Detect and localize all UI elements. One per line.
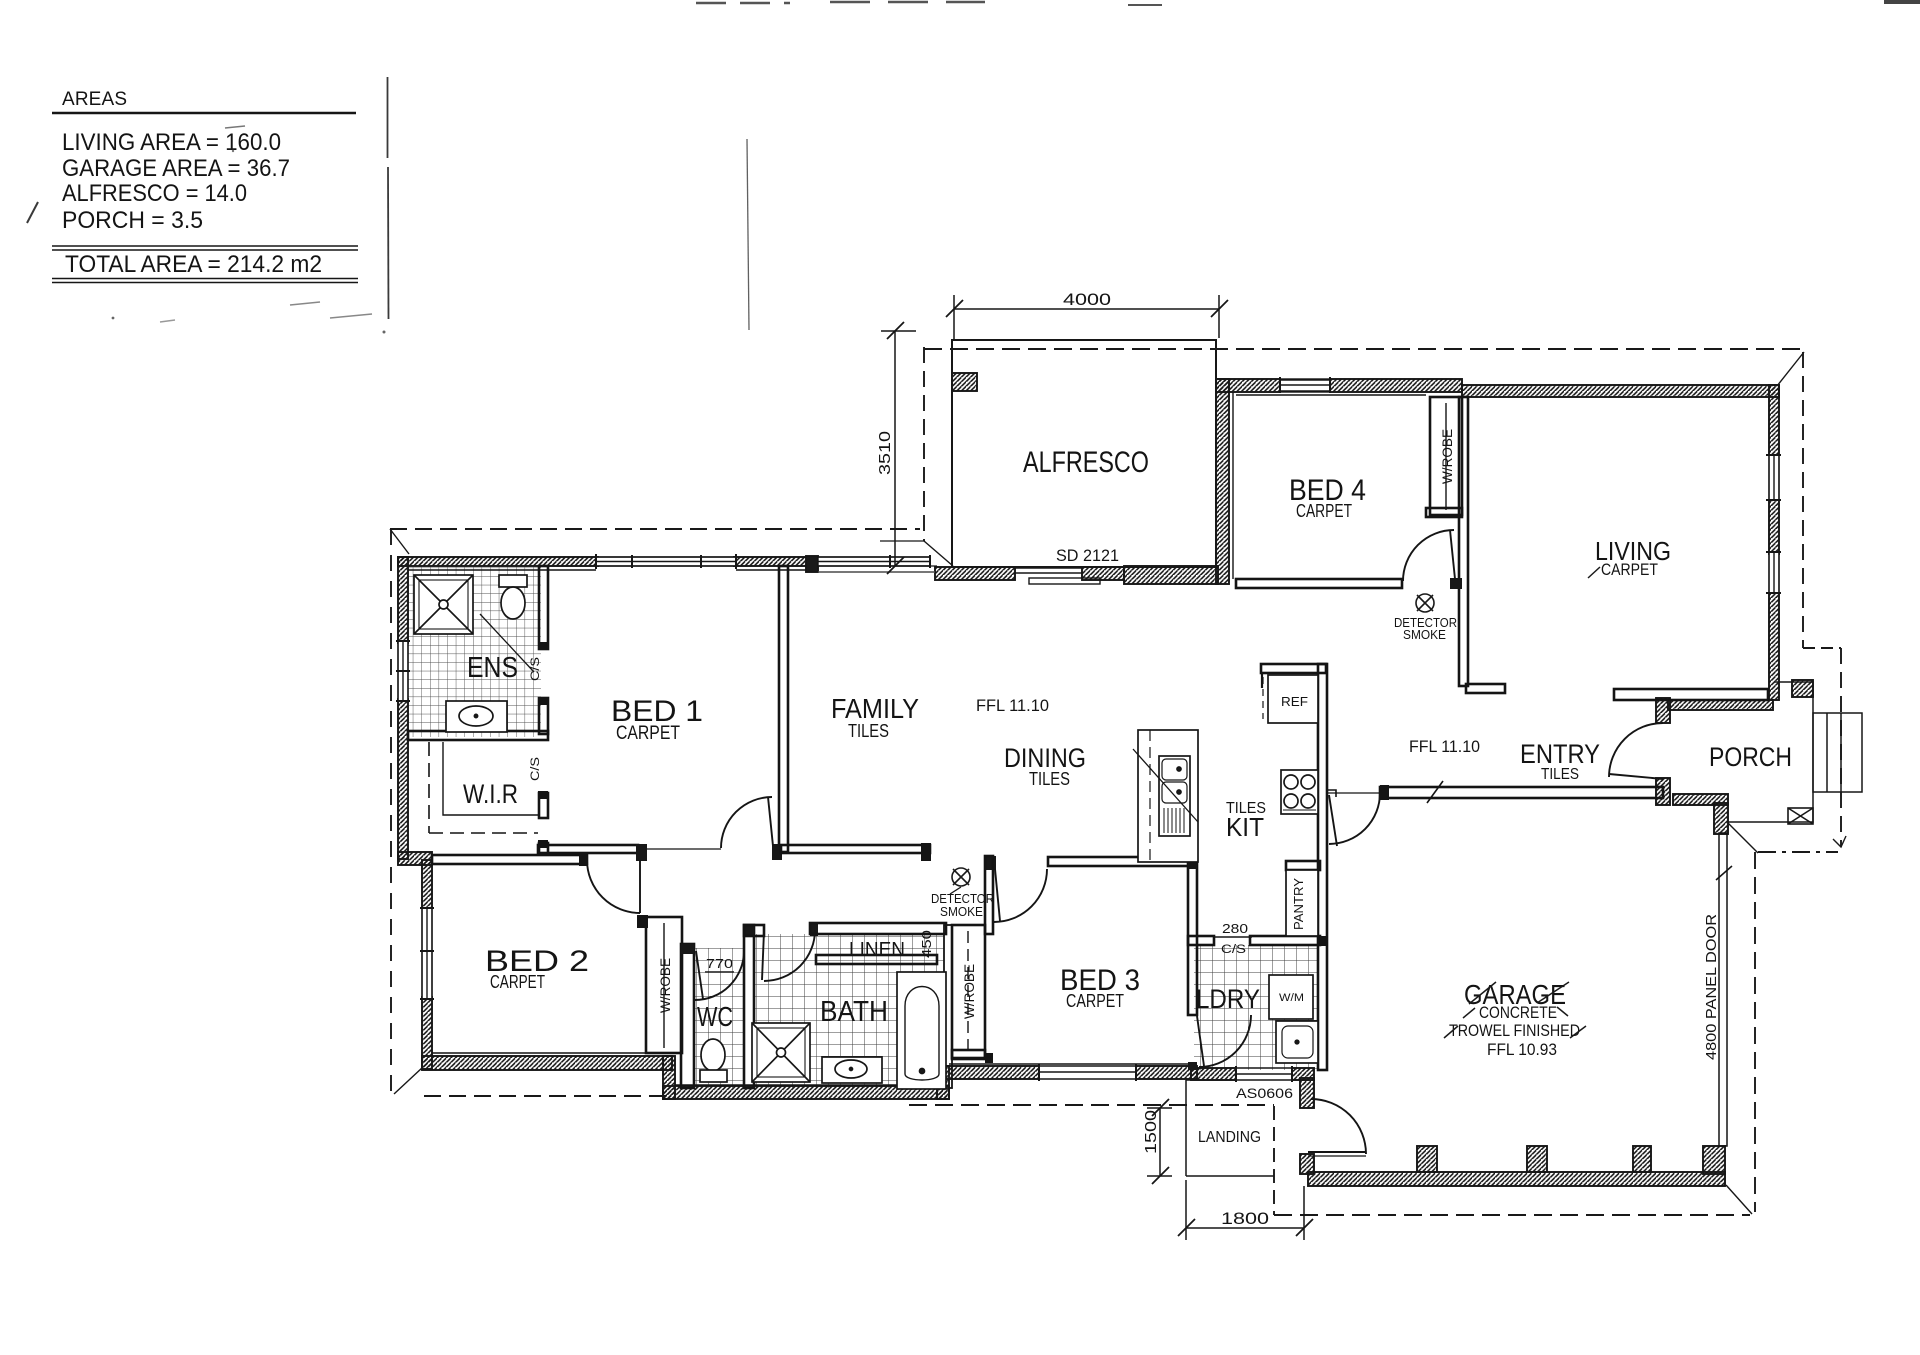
svg-text:TILES: TILES bbox=[1541, 766, 1579, 783]
svg-text:W.I.R: W.I.R bbox=[463, 779, 518, 809]
svg-text:SMOKE: SMOKE bbox=[1403, 628, 1446, 642]
svg-text:LANDING: LANDING bbox=[1198, 1129, 1261, 1146]
svg-text:W/ROBE: W/ROBE bbox=[1439, 429, 1455, 484]
svg-text:PORCH = 3.5: PORCH = 3.5 bbox=[62, 207, 203, 234]
svg-text:1500: 1500 bbox=[1143, 1110, 1160, 1154]
svg-text:C/S: C/S bbox=[530, 757, 542, 781]
svg-text:FAMILY: FAMILY bbox=[831, 693, 919, 724]
svg-text:770: 770 bbox=[706, 957, 733, 971]
svg-text:TILES: TILES bbox=[848, 721, 889, 741]
svg-text:KIT: KIT bbox=[1226, 812, 1264, 842]
svg-text:TILES: TILES bbox=[1029, 769, 1070, 789]
svg-text:3510: 3510 bbox=[877, 431, 894, 475]
svg-text:280: 280 bbox=[1222, 922, 1248, 936]
svg-text:CARPET: CARPET bbox=[616, 723, 680, 744]
svg-text:REF: REF bbox=[1281, 694, 1308, 709]
svg-text:TOTAL AREA = 214.2 m2: TOTAL AREA = 214.2 m2 bbox=[65, 251, 322, 278]
svg-text:ENS: ENS bbox=[467, 652, 518, 684]
svg-text:ENTRY: ENTRY bbox=[1520, 739, 1600, 769]
svg-text:FFL 11.10: FFL 11.10 bbox=[1409, 737, 1480, 756]
svg-text:4000: 4000 bbox=[1063, 290, 1111, 309]
svg-text:PORCH: PORCH bbox=[1709, 742, 1792, 772]
svg-text:CARPET: CARPET bbox=[1601, 560, 1658, 579]
svg-text:SD 2121: SD 2121 bbox=[1056, 546, 1119, 565]
svg-text:W/ROBE: W/ROBE bbox=[657, 958, 673, 1013]
svg-text:WC: WC bbox=[697, 1001, 733, 1032]
svg-text:CARPET: CARPET bbox=[1296, 501, 1352, 521]
svg-text:LIVING AREA = 160.0: LIVING AREA = 160.0 bbox=[62, 129, 281, 156]
svg-text:450: 450 bbox=[919, 930, 934, 958]
svg-text:DETECTOR: DETECTOR bbox=[931, 892, 994, 906]
svg-text:CONCRETE: CONCRETE bbox=[1479, 1003, 1557, 1022]
svg-text:C/S: C/S bbox=[1221, 944, 1246, 956]
svg-text:CARPET: CARPET bbox=[490, 972, 545, 992]
svg-text:4800 PANEL DOOR: 4800 PANEL DOOR bbox=[1703, 914, 1720, 1060]
svg-text:1800: 1800 bbox=[1221, 1209, 1269, 1228]
svg-text:BATH: BATH bbox=[820, 996, 888, 1028]
svg-text:SMOKE: SMOKE bbox=[940, 905, 983, 919]
svg-text:LDRY: LDRY bbox=[1196, 984, 1260, 1014]
svg-text:LINEN: LINEN bbox=[849, 939, 905, 961]
svg-text:FFL 11.10: FFL 11.10 bbox=[976, 696, 1049, 715]
svg-text:AREAS: AREAS bbox=[62, 89, 129, 110]
svg-text:ALFRESCO = 14.0: ALFRESCO = 14.0 bbox=[62, 180, 247, 207]
svg-text:FFL 10.93: FFL 10.93 bbox=[1487, 1040, 1557, 1059]
svg-text:TROWEL FINISHED: TROWEL FINISHED bbox=[1449, 1021, 1580, 1040]
svg-text:AS0606: AS0606 bbox=[1236, 1085, 1293, 1101]
svg-text:PANTRY: PANTRY bbox=[1291, 878, 1306, 930]
svg-text:ALFRESCO: ALFRESCO bbox=[1023, 446, 1149, 479]
svg-text:GARAGE AREA = 36.7: GARAGE AREA = 36.7 bbox=[62, 155, 290, 182]
svg-text:C/S: C/S bbox=[530, 657, 542, 681]
svg-text:W/M: W/M bbox=[1279, 992, 1304, 1004]
svg-text:CARPET: CARPET bbox=[1066, 991, 1124, 1011]
svg-text:W/ROBE: W/ROBE bbox=[961, 964, 977, 1019]
